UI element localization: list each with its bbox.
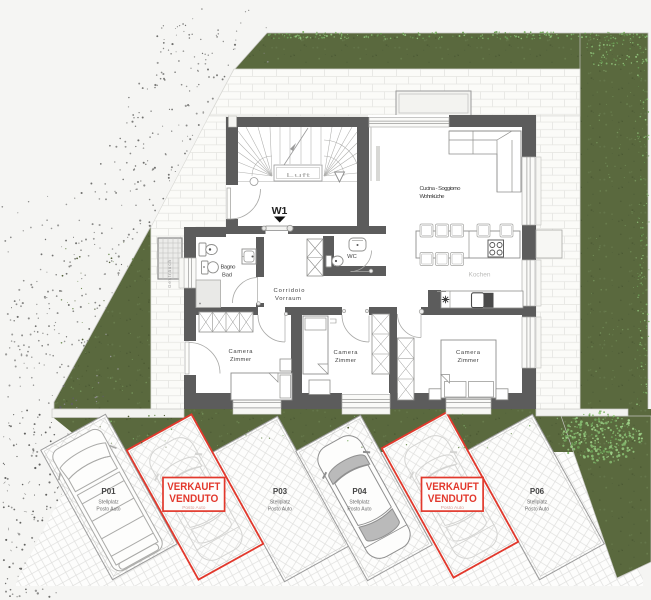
svg-text:Camera: Camera: [456, 350, 481, 356]
svg-text:VENDUTO: VENDUTO: [428, 493, 477, 505]
svg-text:Bagno: Bagno: [221, 265, 236, 271]
svg-text:Bad: Bad: [222, 273, 232, 279]
svg-text:Zimmer: Zimmer: [335, 358, 356, 364]
svg-text:Zimmer: Zimmer: [458, 358, 479, 364]
svg-text:Posto Auto: Posto Auto: [347, 507, 371, 513]
svg-text:Cucina - Soggiorno: Cucina - Soggiorno: [420, 186, 461, 192]
svg-text:Stellplatz: Stellplatz: [527, 500, 548, 506]
svg-text:Posto Auto: Posto Auto: [525, 507, 549, 513]
svg-text:WC: WC: [347, 254, 357, 260]
svg-text:Gesträuch: Gesträuch: [167, 260, 172, 288]
svg-text:Posto Auto: Posto Auto: [182, 505, 206, 511]
svg-text:VERKAUFT: VERKAUFT: [426, 481, 479, 493]
svg-text:Luft: Luft: [286, 173, 311, 179]
svg-text:Kochen: Kochen: [469, 272, 491, 279]
svg-text:P03: P03: [273, 487, 288, 496]
svg-text:Stellplatz: Stellplatz: [349, 500, 370, 506]
svg-text:Stellplatz: Stellplatz: [98, 500, 119, 506]
svg-text:Posto Auto: Posto Auto: [96, 507, 120, 513]
svg-text:Wohnküche: Wohnküche: [420, 194, 445, 200]
svg-text:Zimmer: Zimmer: [230, 357, 251, 363]
svg-text:W1: W1: [272, 205, 288, 217]
svg-text:Camera: Camera: [229, 349, 254, 355]
svg-text:P01: P01: [101, 487, 116, 496]
svg-text:Camera: Camera: [334, 350, 359, 356]
svg-text:VERKAUFT: VERKAUFT: [167, 481, 220, 493]
svg-text:VENDUTO: VENDUTO: [169, 493, 218, 505]
svg-text:Corridoio: Corridoio: [274, 288, 305, 294]
svg-text:Vorraum: Vorraum: [275, 296, 301, 302]
svg-text:P04: P04: [352, 487, 367, 496]
svg-text:P06: P06: [530, 487, 545, 496]
svg-text:Posto Auto: Posto Auto: [441, 505, 465, 511]
svg-text:Posto Auto: Posto Auto: [268, 507, 292, 513]
svg-text:Stellplatz: Stellplatz: [270, 500, 291, 506]
